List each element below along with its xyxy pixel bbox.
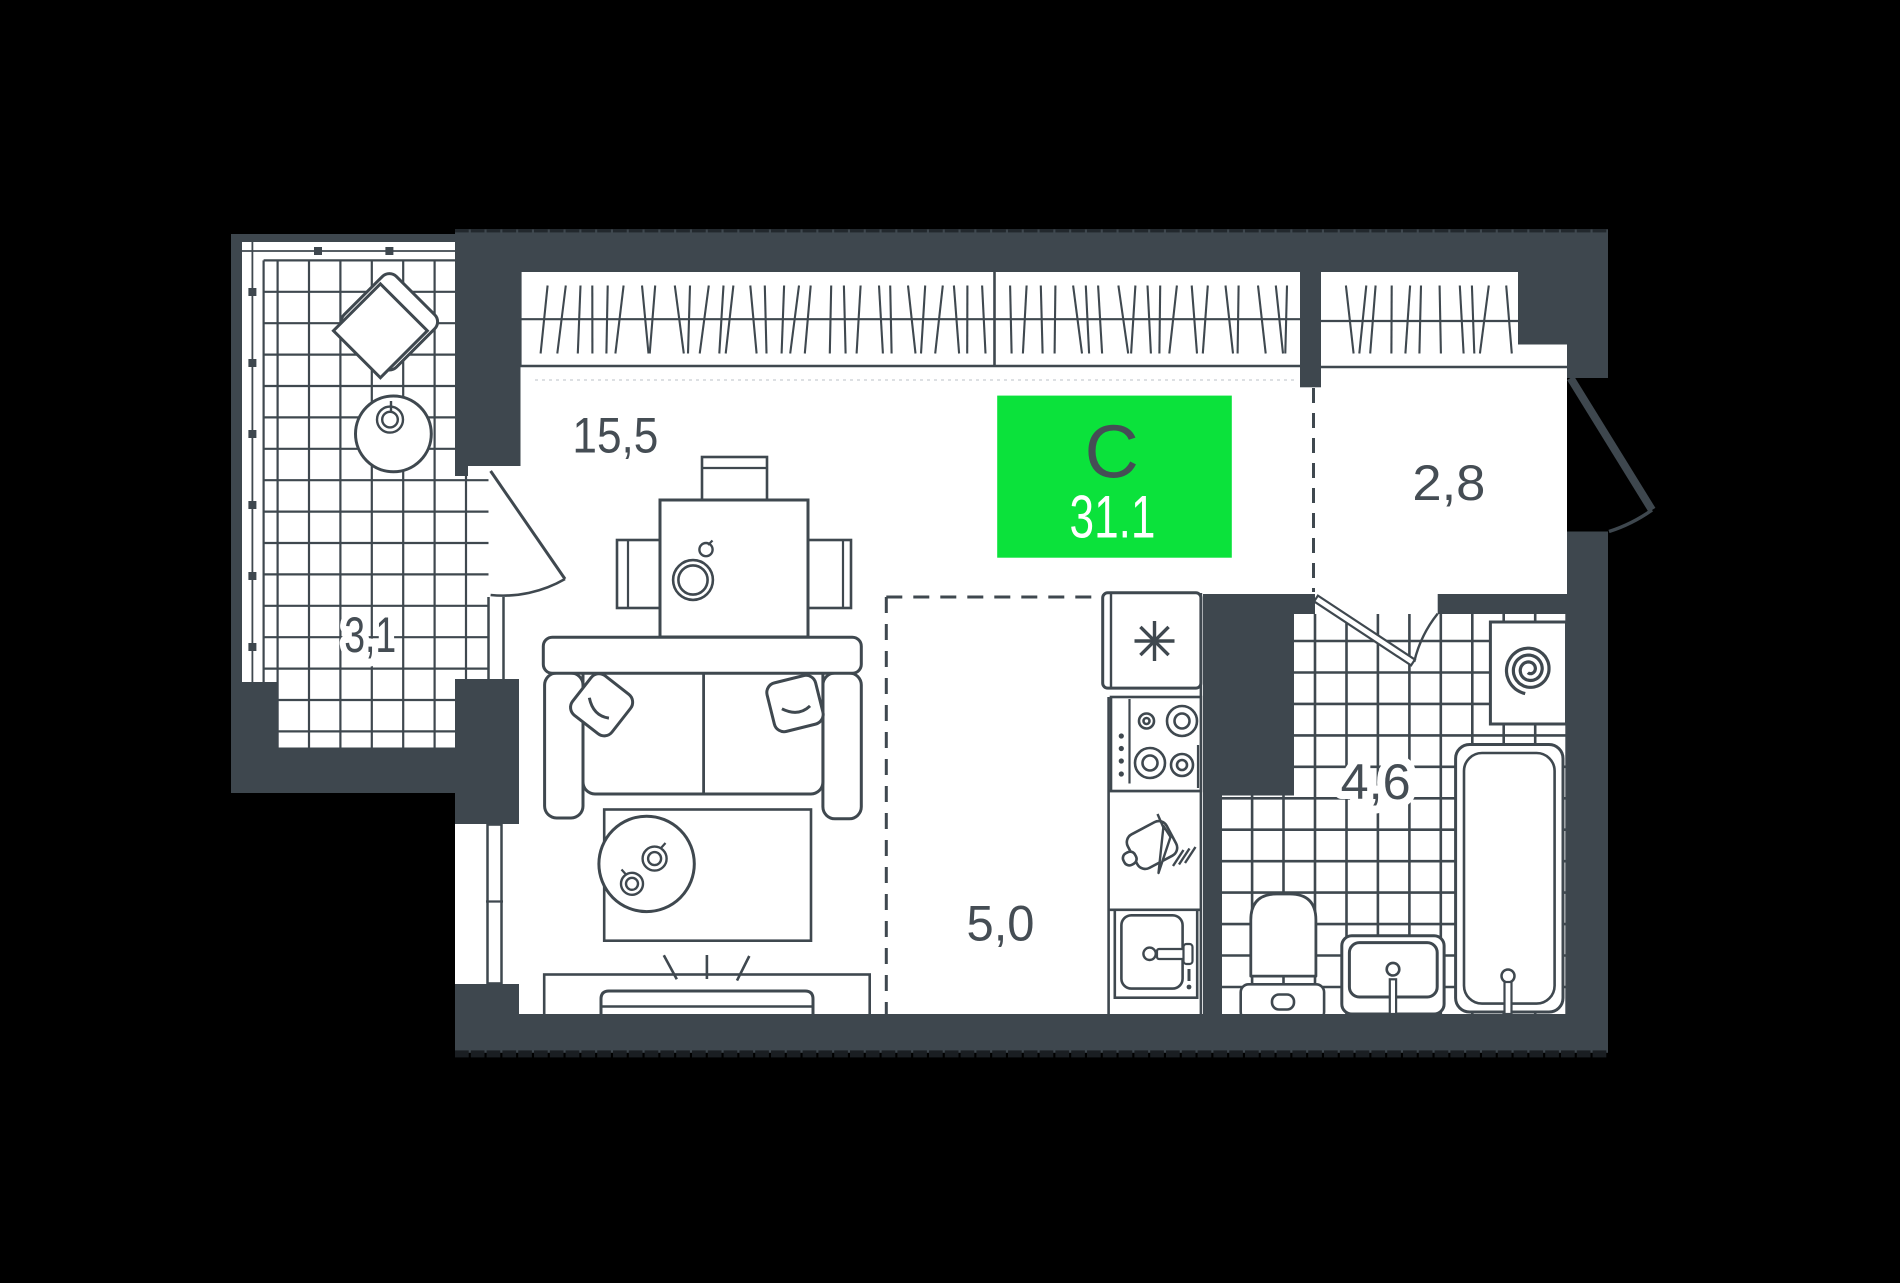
svg-text:4,6: 4,6 [1341,754,1411,810]
svg-text:С: С [1085,409,1139,493]
svg-text:31.1: 31.1 [1070,484,1156,551]
svg-text:3,1: 3,1 [344,607,396,663]
svg-text:5,0: 5,0 [967,896,1035,952]
svg-text:2,8: 2,8 [1412,455,1485,511]
svg-text:15,5: 15,5 [572,408,658,464]
